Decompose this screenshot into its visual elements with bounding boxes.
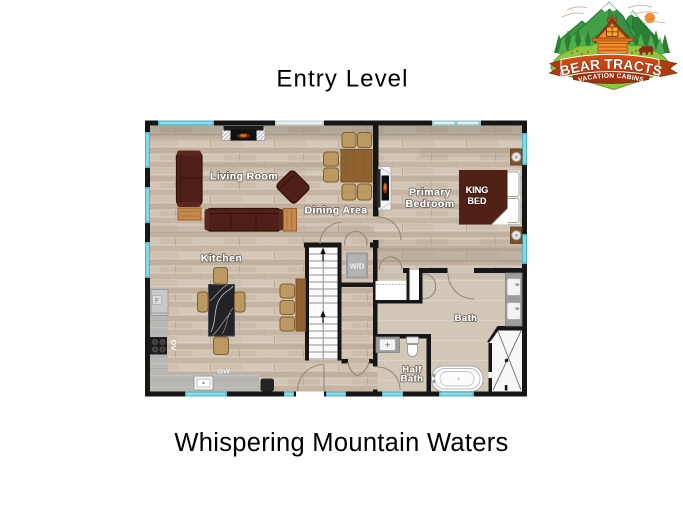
svg-text:F: F xyxy=(155,298,159,305)
svg-text:KING: KING xyxy=(466,185,489,195)
svg-text:Whispering Mountain Waters: Whispering Mountain Waters xyxy=(174,429,508,457)
svg-text:Dining Area: Dining Area xyxy=(305,205,368,217)
svg-text:Bath: Bath xyxy=(401,374,424,385)
svg-text:BED: BED xyxy=(467,196,487,206)
svg-text:Entry Level: Entry Level xyxy=(276,66,408,93)
svg-text:OV: OV xyxy=(169,340,178,351)
svg-text:W/D: W/D xyxy=(350,262,365,271)
svg-text:Living Room: Living Room xyxy=(210,171,278,183)
svg-text:Bath: Bath xyxy=(455,313,478,324)
svg-text:Kitchen: Kitchen xyxy=(201,253,242,265)
svg-text:DW: DW xyxy=(218,367,231,376)
svg-text:Bedroom: Bedroom xyxy=(406,198,455,210)
svg-text:Primary: Primary xyxy=(409,187,451,199)
